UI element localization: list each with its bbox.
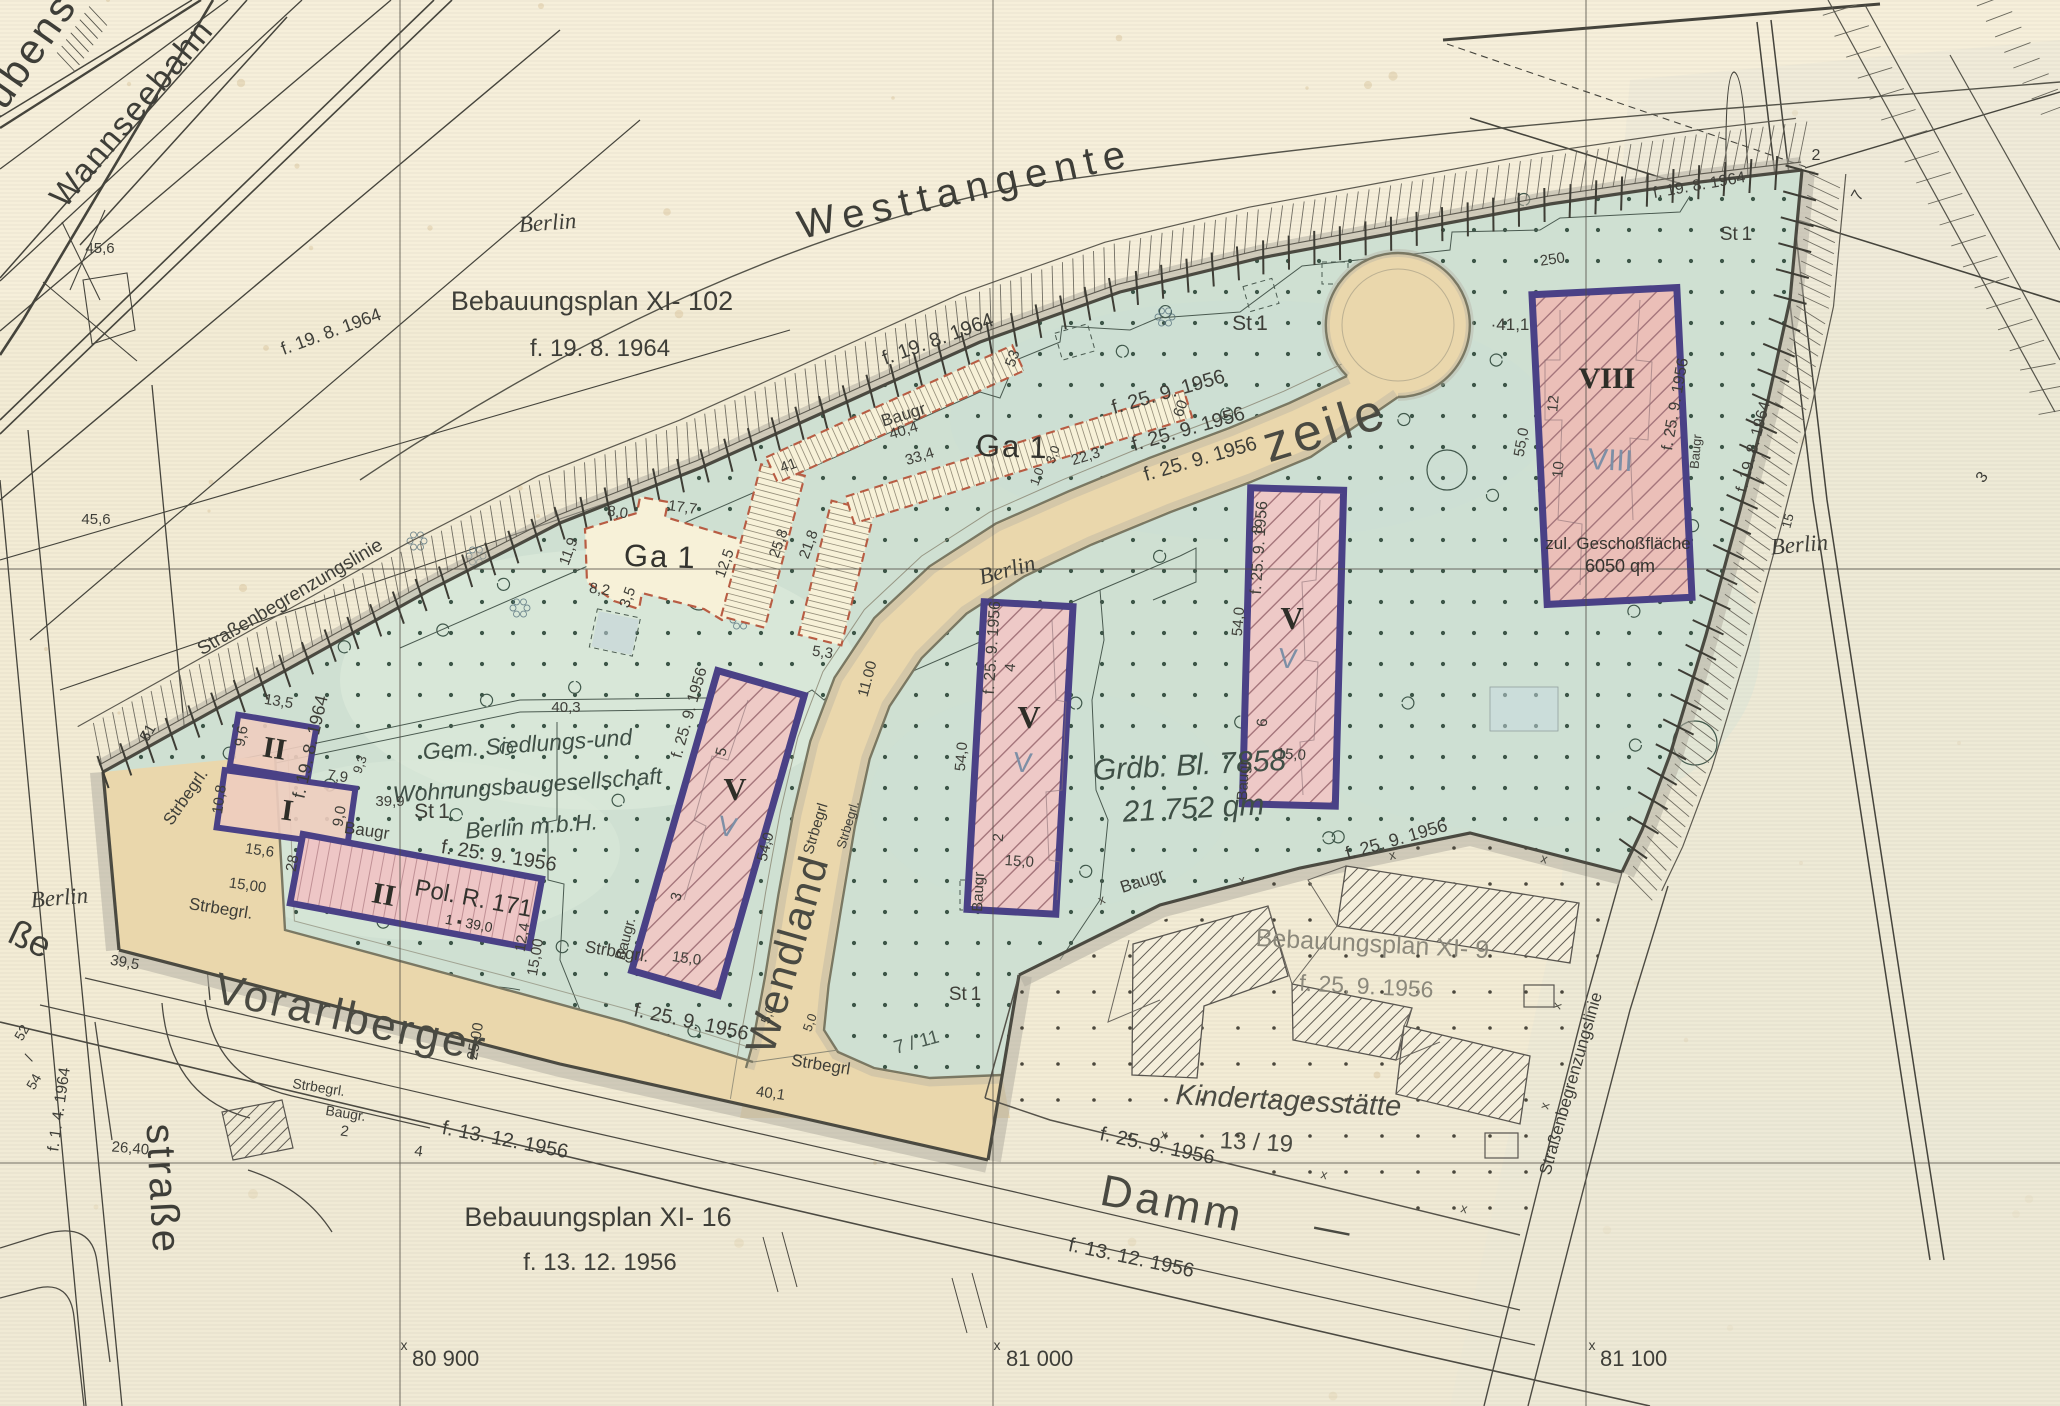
svg-text:St 1: St 1 [414,800,450,823]
svg-text:2: 2 [1812,147,1821,164]
svg-text:St 1: St 1 [1232,312,1268,335]
svg-text:Berlin: Berlin [1770,530,1829,560]
svg-text:V: V [1277,642,1299,675]
svg-text:2: 2 [990,833,1008,843]
svg-text:Bebauungsplan XI- 102: Bebauungsplan XI- 102 [451,286,733,316]
svg-text:Ga 1: Ga 1 [623,538,697,576]
svg-text:VIII: VIII [1579,362,1636,395]
svg-text:V: V [1017,699,1040,735]
svg-text:zul. Geschoßfläche: zul. Geschoßfläche [1545,534,1691,553]
svg-text:80 900: 80 900 [412,1346,479,1371]
svg-text:250: 250 [1539,249,1566,269]
svg-text:Bebauungsplan XI- 16: Bebauungsplan XI- 16 [464,1202,731,1232]
svg-text:4: 4 [1002,663,1020,673]
svg-text:8: 8 [1249,525,1267,535]
svg-text:15,0: 15,0 [1004,852,1034,871]
svg-text:x: x [401,1337,408,1353]
svg-text:6: 6 [1254,718,1272,728]
svg-text:8,0: 8,0 [606,503,629,523]
svg-text:—: — [1311,1204,1354,1251]
svg-text:81 000: 81 000 [1006,1346,1073,1371]
svg-text:26,40: 26,40 [111,1138,150,1158]
svg-text:13 / 19: 13 / 19 [1219,1127,1294,1158]
svg-text:40,3: 40,3 [551,699,580,716]
svg-text:Ga 1: Ga 1 [975,428,1049,466]
svg-text:12: 12 [1544,395,1562,413]
svg-text:f. 13. 12. 1956: f. 13. 12. 1956 [523,1249,676,1276]
svg-text:8,2: 8,2 [588,580,611,600]
svg-text:St 1: St 1 [1720,224,1752,245]
svg-text:Baugr: Baugr [1687,433,1705,470]
svg-text:6050 qm: 6050 qm [1585,556,1655,576]
svg-text:Berlin: Berlin [30,883,89,913]
svg-text:·41,1: ·41,1 [1491,315,1530,334]
svg-text:10: 10 [1549,461,1567,479]
svg-text:39,9: 39,9 [375,793,404,810]
svg-text:f. 19. 8. 1964: f. 19. 8. 1964 [530,335,670,362]
svg-text:15,0: 15,0 [1276,745,1306,764]
svg-text:28: 28 [283,854,303,873]
svg-text:Baugr: Baugr [969,871,988,912]
svg-text:Baugr.: Baugr. [1234,757,1253,801]
svg-text:45,6: 45,6 [85,240,114,257]
svg-text:V: V [1280,600,1303,636]
svg-text:81 100: 81 100 [1600,1346,1667,1371]
svg-text:5,3: 5,3 [811,643,834,663]
svg-text:x: x [994,1337,1001,1353]
svg-text:54,0: 54,0 [952,741,971,772]
svg-text:V: V [1012,746,1034,779]
svg-text:9,6: 9,6 [231,724,251,747]
svg-text:VIII: VIII [1587,443,1634,478]
svg-text:45,6: 45,6 [81,511,110,528]
svg-text:St 1: St 1 [949,984,981,1005]
svg-text:54,0: 54,0 [1229,606,1248,637]
svg-text:V: V [723,771,746,807]
svg-text:Berlin: Berlin [518,208,577,237]
svg-text:7,9: 7,9 [326,767,349,787]
svg-text:x: x [1589,1337,1596,1353]
